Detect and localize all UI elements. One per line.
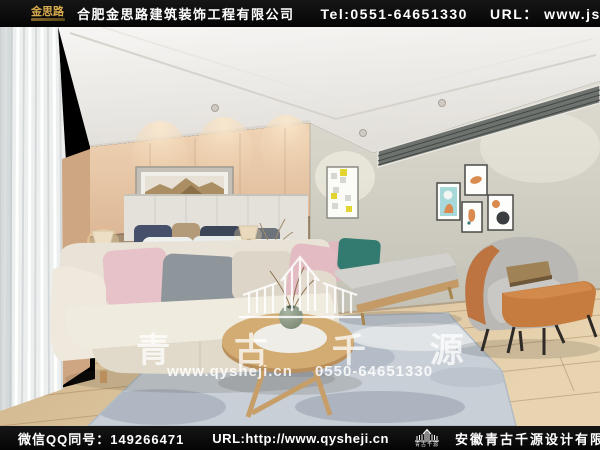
header-brand: 金思路: [31, 7, 65, 17]
footer-website-url: URL:http://www.qysheji.cn: [212, 431, 389, 446]
footer-company-name: 安徽青古千源设计有限公司: [455, 429, 600, 448]
room-render-canvas: [0, 27, 600, 426]
footer-qq-number: 微信QQ同号：149266471: [18, 429, 184, 448]
room-render: 青 古 千 源 www.qysheji.cn 0550-64651330: [0, 27, 600, 426]
header-bar: 金思路 合肥金思路建筑装饰工程有限公司 Tel:0551-64651330 UR…: [0, 0, 600, 27]
footer-bar: 微信QQ同号：149266471 URL:http://www.qysheji.…: [0, 426, 600, 450]
header-website-url: URL： www.jslu.cn: [490, 4, 600, 24]
promo-image: 金思路 合肥金思路建筑装饰工程有限公司 Tel:0551-64651330 UR…: [0, 0, 600, 450]
header-company-name: 合肥金思路建筑装饰工程有限公司: [77, 4, 295, 23]
mosaic-artwork: [327, 167, 358, 218]
header-telephone: Tel:0551-64651330: [321, 6, 468, 22]
header-brand-block: 金思路: [31, 7, 65, 21]
sofa-pillow-pink: [102, 247, 170, 307]
footer-logo-label: 青古千源: [415, 441, 439, 448]
footer-logo: 青古千源: [413, 428, 441, 448]
white-skyline-building-icon: [413, 428, 441, 442]
header-brand-underline: [31, 18, 65, 21]
